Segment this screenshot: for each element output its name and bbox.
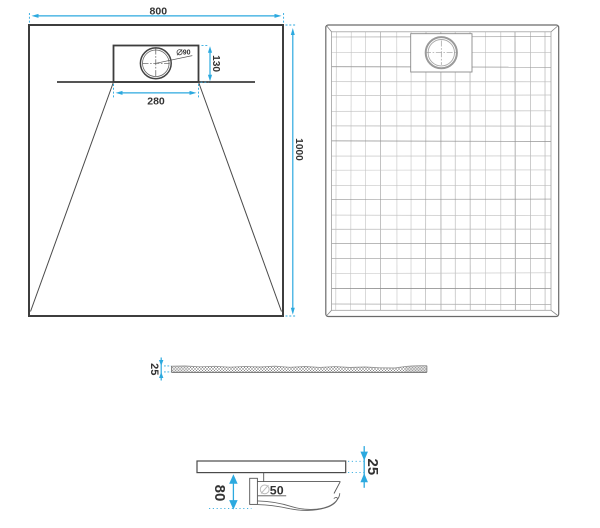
svg-text:80: 80 <box>211 485 228 502</box>
svg-text:130: 130 <box>210 55 221 72</box>
svg-text:25: 25 <box>364 459 381 476</box>
svg-text:1000: 1000 <box>293 138 304 161</box>
svg-text:25: 25 <box>148 363 160 375</box>
svg-text:50: 50 <box>270 483 284 497</box>
svg-text:800: 800 <box>150 5 168 17</box>
svg-text:90: 90 <box>183 50 191 57</box>
svg-text:280: 280 <box>147 95 165 107</box>
